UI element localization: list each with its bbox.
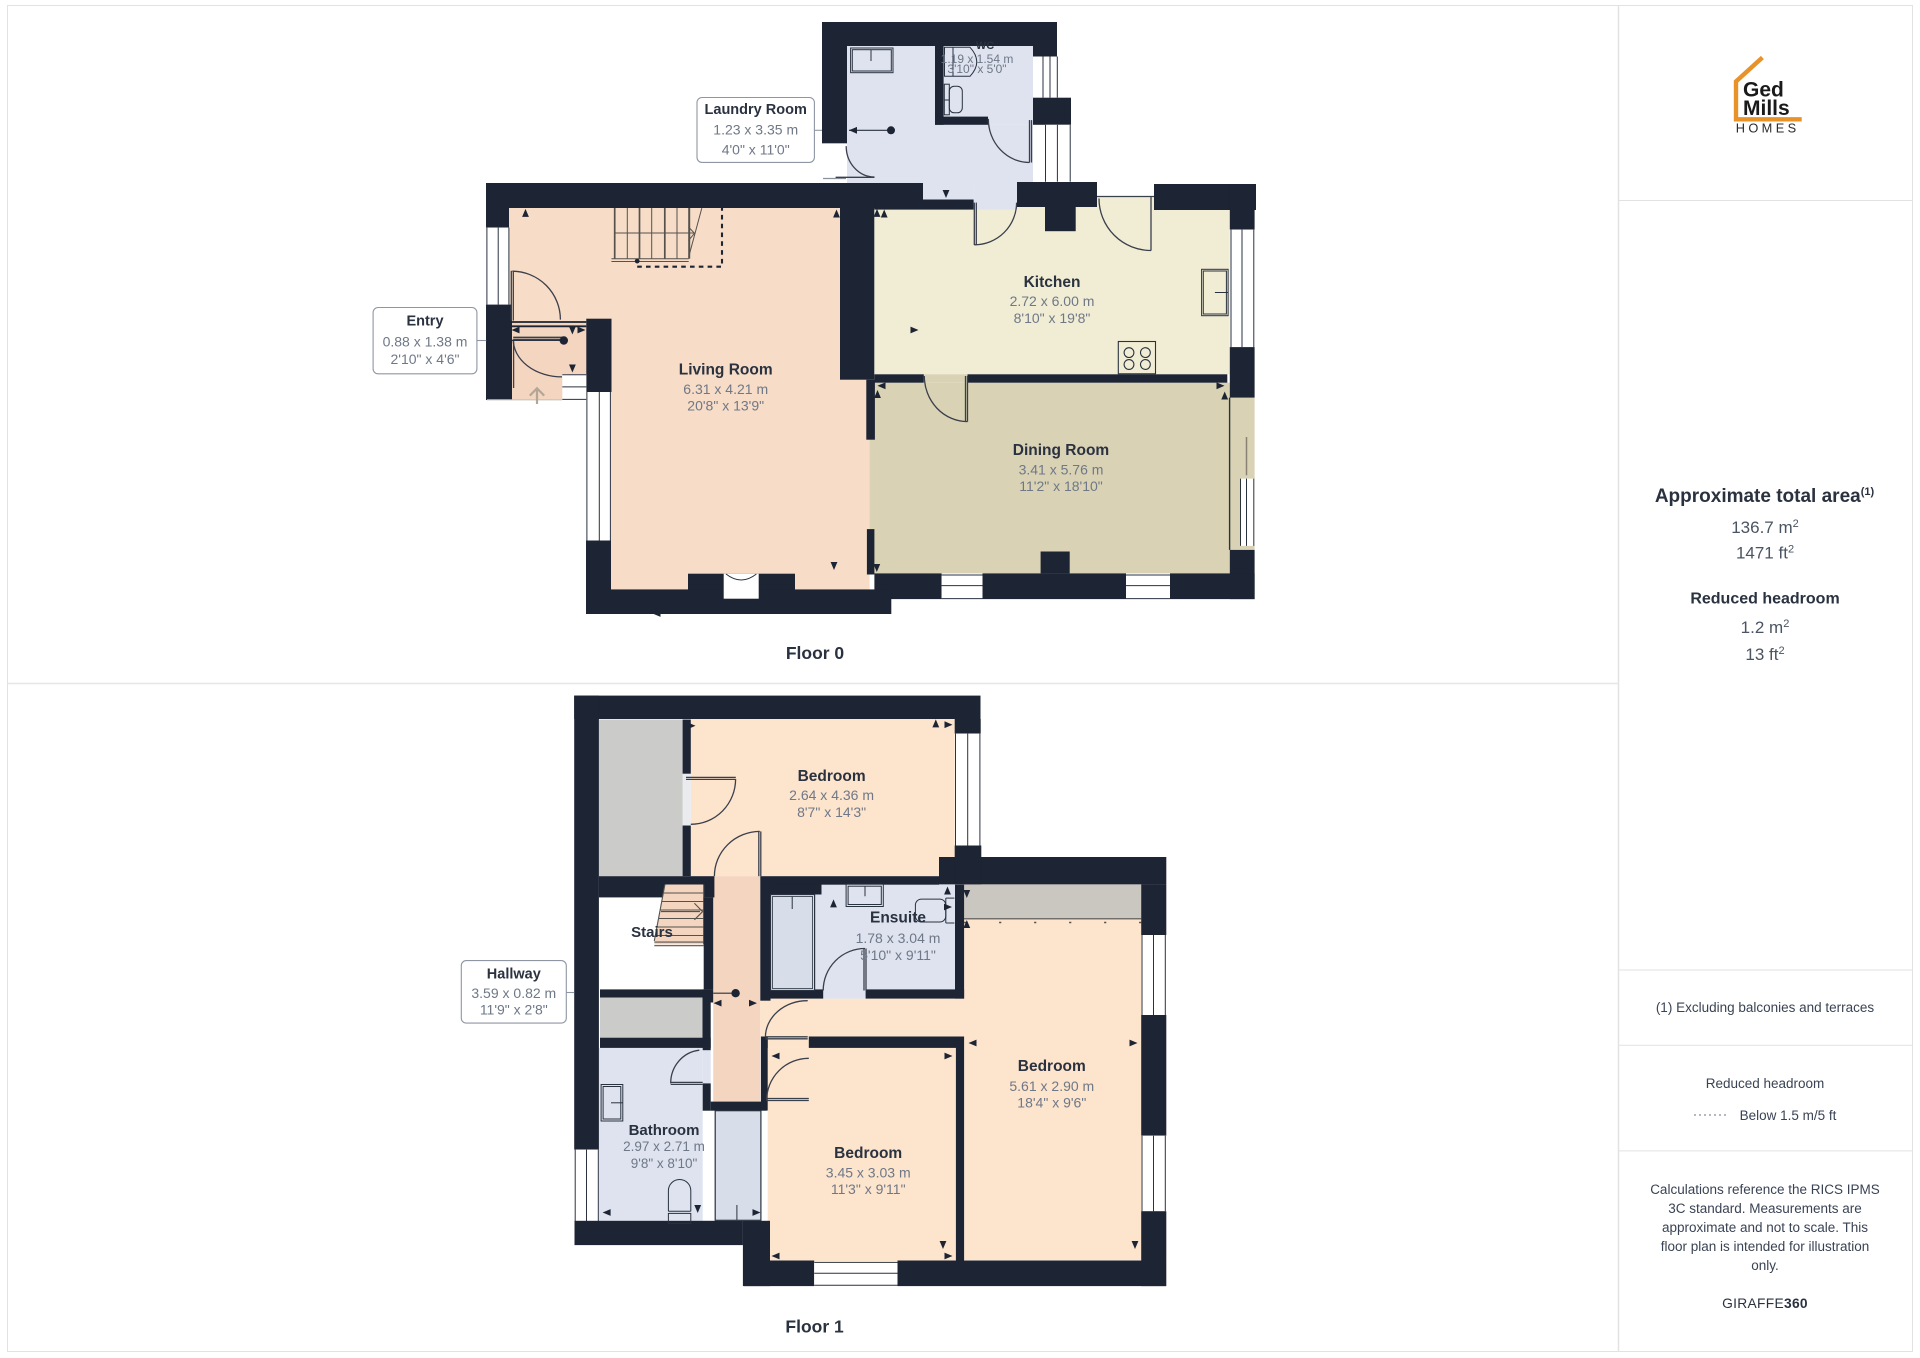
svg-text:Stairs: Stairs [631, 924, 673, 941]
svg-text:1471 ft2: 1471 ft2 [1736, 544, 1794, 563]
svg-text:Laundry Room: Laundry Room [705, 102, 807, 118]
svg-text:11'3" x 9'11": 11'3" x 9'11" [831, 1181, 906, 1197]
svg-text:Floor 0: Floor 0 [786, 643, 845, 663]
svg-text:20'8" x 13'9": 20'8" x 13'9" [687, 398, 764, 414]
svg-text:Calculations reference the RIC: Calculations reference the RICS IPMS [1650, 1182, 1880, 1197]
svg-text:HOMES: HOMES [1736, 121, 1800, 136]
svg-text:1.2 m2: 1.2 m2 [1741, 618, 1790, 637]
svg-text:8'7" x 14'3": 8'7" x 14'3" [797, 804, 866, 820]
svg-text:Living Room: Living Room [679, 362, 773, 379]
svg-text:Entry: Entry [406, 314, 443, 330]
svg-text:3.41 x 5.76 m: 3.41 x 5.76 m [1019, 462, 1104, 478]
svg-text:Floor 1: Floor 1 [785, 1317, 844, 1337]
svg-text:Reduced headroom: Reduced headroom [1690, 591, 1839, 608]
svg-text:Bedroom: Bedroom [798, 768, 866, 785]
svg-text:5'10" x 9'11": 5'10" x 9'11" [860, 947, 936, 963]
svg-text:8'10" x 19'8": 8'10" x 19'8" [1014, 310, 1091, 326]
svg-text:4'0" x 11'0": 4'0" x 11'0" [722, 142, 790, 158]
svg-text:3C standard. Measurements are: 3C standard. Measurements are [1668, 1201, 1862, 1216]
svg-text:6.31 x 4.21 m: 6.31 x 4.21 m [683, 381, 768, 397]
svg-text:Approximate total area(1): Approximate total area(1) [1655, 486, 1875, 507]
svg-text:Bathroom: Bathroom [629, 1122, 700, 1139]
svg-text:2.72 x 6.00 m: 2.72 x 6.00 m [1010, 293, 1095, 309]
svg-text:3.45 x 3.03 m: 3.45 x 3.03 m [826, 1165, 911, 1181]
svg-text:WC: WC [976, 40, 994, 52]
svg-text:5.61 x 2.90 m: 5.61 x 2.90 m [1009, 1078, 1094, 1094]
svg-text:2'10" x 4'6": 2'10" x 4'6" [391, 351, 460, 367]
svg-text:approximate and not to scale.: approximate and not to scale. This [1662, 1220, 1868, 1235]
svg-text:0.88 x 1.38 m: 0.88 x 1.38 m [383, 334, 468, 350]
svg-text:Bedroom: Bedroom [834, 1145, 902, 1162]
svg-text:18'4" x 9'6": 18'4" x 9'6" [1017, 1095, 1086, 1111]
svg-text:Below 1.5 m/5 ft: Below 1.5 m/5 ft [1740, 1108, 1837, 1123]
svg-text:Hallway: Hallway [487, 967, 541, 983]
svg-text:(1) Excluding balconies and te: (1) Excluding balconies and terraces [1656, 1000, 1875, 1015]
svg-text:136.7 m2: 136.7 m2 [1731, 518, 1799, 537]
svg-text:1.78 x 3.04 m: 1.78 x 3.04 m [856, 930, 941, 946]
svg-text:11'2" x 18'10": 11'2" x 18'10" [1019, 478, 1103, 494]
svg-text:Kitchen: Kitchen [1024, 274, 1081, 291]
svg-text:floor plan is intended for ill: floor plan is intended for illustration [1661, 1239, 1870, 1254]
svg-text:3.59 x 0.82 m: 3.59 x 0.82 m [471, 985, 556, 1001]
svg-text:3'10" x 5'0": 3'10" x 5'0" [947, 62, 1006, 76]
svg-text:Dining Room: Dining Room [1013, 442, 1109, 459]
svg-text:1.23 x 3.35 m: 1.23 x 3.35 m [713, 122, 798, 138]
svg-text:2.64 x 4.36 m: 2.64 x 4.36 m [789, 787, 874, 803]
svg-text:Ensuite: Ensuite [870, 910, 926, 927]
svg-text:Bedroom: Bedroom [1018, 1058, 1086, 1075]
svg-text:9'8" x 8'10": 9'8" x 8'10" [631, 1156, 698, 1171]
svg-text:GIRAFFE360: GIRAFFE360 [1722, 1296, 1808, 1311]
svg-text:2.97 x 2.71 m: 2.97 x 2.71 m [623, 1139, 705, 1154]
svg-text:Reduced headroom: Reduced headroom [1706, 1076, 1825, 1091]
svg-text:only.: only. [1751, 1258, 1779, 1273]
svg-text:11'9" x 2'8": 11'9" x 2'8" [480, 1002, 548, 1018]
svg-text:Mills: Mills [1743, 97, 1790, 120]
